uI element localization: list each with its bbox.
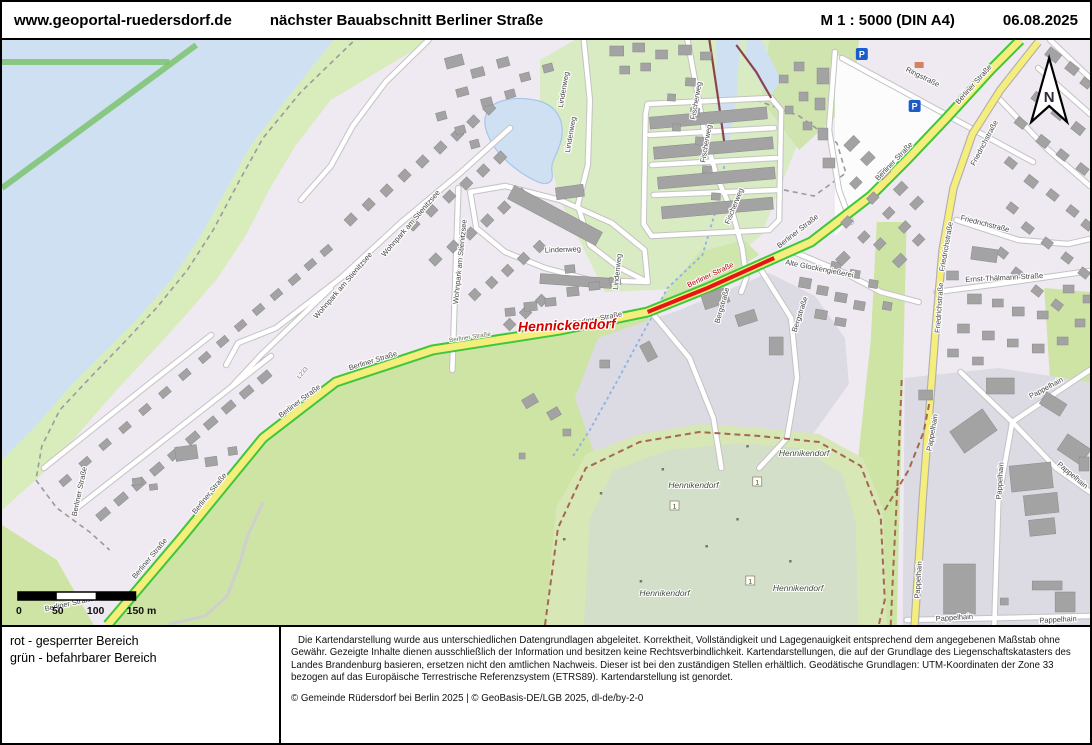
plot-marker-label: 1	[673, 503, 677, 510]
building	[1055, 592, 1075, 612]
copyright-text: © Gemeinde Rüdersdorf bei Berlin 2025 | …	[291, 693, 1080, 704]
tree-dot	[600, 492, 602, 495]
building	[1075, 319, 1085, 327]
building	[1009, 462, 1053, 492]
building	[205, 456, 218, 467]
building	[853, 300, 865, 311]
disclaimer-text: Die Kartendarstellung wurde aus untersch…	[291, 635, 1080, 684]
building	[667, 94, 675, 101]
building	[1057, 337, 1068, 345]
building	[1023, 492, 1059, 515]
building	[972, 357, 983, 365]
building	[1028, 518, 1055, 537]
legend-box: rot - gesperrter Bereich grün - befahrba…	[2, 627, 281, 743]
building	[1063, 285, 1074, 293]
building	[702, 166, 711, 173]
building	[967, 294, 981, 304]
building	[524, 301, 538, 311]
building	[982, 331, 994, 340]
building	[947, 271, 959, 280]
building	[817, 68, 829, 84]
building	[228, 446, 238, 455]
north-letter: N	[1044, 89, 1055, 106]
map-canvas[interactable]: 111 Berliner StraßeBerliner StraßeBerlin…	[2, 40, 1090, 625]
building	[566, 286, 579, 296]
footer-panel: rot - gesperrter Bereich grün - befahrba…	[2, 625, 1090, 743]
building	[957, 324, 969, 333]
building	[948, 349, 959, 357]
building	[785, 106, 793, 114]
building	[610, 46, 624, 56]
parking-icon: P	[909, 100, 921, 112]
building	[1012, 307, 1024, 316]
building	[620, 66, 630, 74]
plot-marker-label: 1	[755, 479, 759, 486]
parking-icon: P	[856, 48, 868, 60]
legend-red-line: rot - gesperrter Bereich	[10, 633, 271, 650]
building	[1000, 598, 1008, 605]
tree-dot	[640, 580, 642, 583]
building	[565, 264, 576, 273]
forest-label: Hennikendorf	[773, 583, 825, 593]
svg-text:P: P	[859, 49, 865, 59]
building	[816, 285, 828, 296]
building	[672, 124, 680, 131]
scale-tick-150: 150 m	[127, 606, 157, 617]
building	[1032, 344, 1044, 353]
building	[600, 360, 610, 368]
building	[868, 279, 878, 288]
building	[588, 281, 600, 290]
building	[992, 299, 1003, 307]
scale-tick-100: 100	[87, 606, 105, 617]
building	[1083, 295, 1090, 303]
plot-marker-label: 1	[748, 578, 752, 585]
building	[799, 92, 808, 101]
site-url: www.geoportal-ruedersdorf.de	[14, 12, 232, 29]
building	[1007, 339, 1018, 347]
building	[1079, 457, 1089, 471]
building	[834, 292, 847, 303]
building	[174, 445, 198, 462]
scale-tick-0: 0	[16, 606, 22, 617]
building	[1032, 581, 1062, 590]
building	[641, 63, 651, 71]
building	[711, 193, 720, 200]
building	[823, 158, 835, 168]
building	[834, 317, 846, 327]
print-date: 06.08.2025	[1003, 12, 1078, 29]
street-label: Lindenweg	[545, 244, 581, 254]
tree-dot	[563, 538, 565, 541]
building	[815, 98, 825, 110]
forest-label: Hennikendorf	[639, 588, 691, 598]
building	[700, 52, 711, 60]
building	[798, 277, 812, 289]
map-container: 111 Berliner StraßeBerliner StraßeBerlin…	[2, 40, 1090, 625]
tree-dot	[662, 468, 664, 471]
building	[794, 62, 804, 71]
tree-dot	[705, 545, 707, 548]
building	[769, 337, 783, 355]
building	[944, 564, 976, 614]
building	[149, 483, 158, 490]
building	[1037, 311, 1048, 319]
info-box: Die Kartendarstellung wurde aus untersch…	[281, 627, 1090, 743]
svg-text:P: P	[912, 101, 918, 111]
building	[814, 309, 827, 320]
tree-dot	[746, 445, 748, 448]
building	[803, 122, 812, 130]
scale-tick-50: 50	[52, 606, 64, 617]
tree-dot	[736, 518, 738, 521]
map-scale: M 1 : 5000 (DIN A4)	[820, 12, 954, 29]
building	[563, 429, 571, 436]
building	[986, 378, 1014, 394]
tree-dot	[789, 560, 791, 563]
forest-label: Hennikendorf	[779, 448, 831, 458]
building	[656, 50, 668, 59]
building	[132, 477, 143, 485]
header-bar: www.geoportal-ruedersdorf.de nächster Ba…	[2, 2, 1090, 40]
building	[818, 128, 828, 140]
building	[505, 307, 516, 316]
building	[679, 45, 692, 55]
building	[545, 297, 557, 306]
print-page: www.geoportal-ruedersdorf.de nächster Ba…	[0, 0, 1092, 745]
page-title: nächster Bauabschnitt Berliner Straße	[270, 12, 821, 29]
building	[882, 301, 892, 310]
building	[779, 75, 788, 83]
legend-green-line: grün - befahrbarer Bereich	[10, 650, 271, 667]
building	[919, 390, 933, 400]
forest-label: Hennikendorf	[668, 480, 720, 490]
building	[633, 43, 645, 52]
building	[519, 453, 525, 459]
building-red-roof	[915, 62, 924, 68]
